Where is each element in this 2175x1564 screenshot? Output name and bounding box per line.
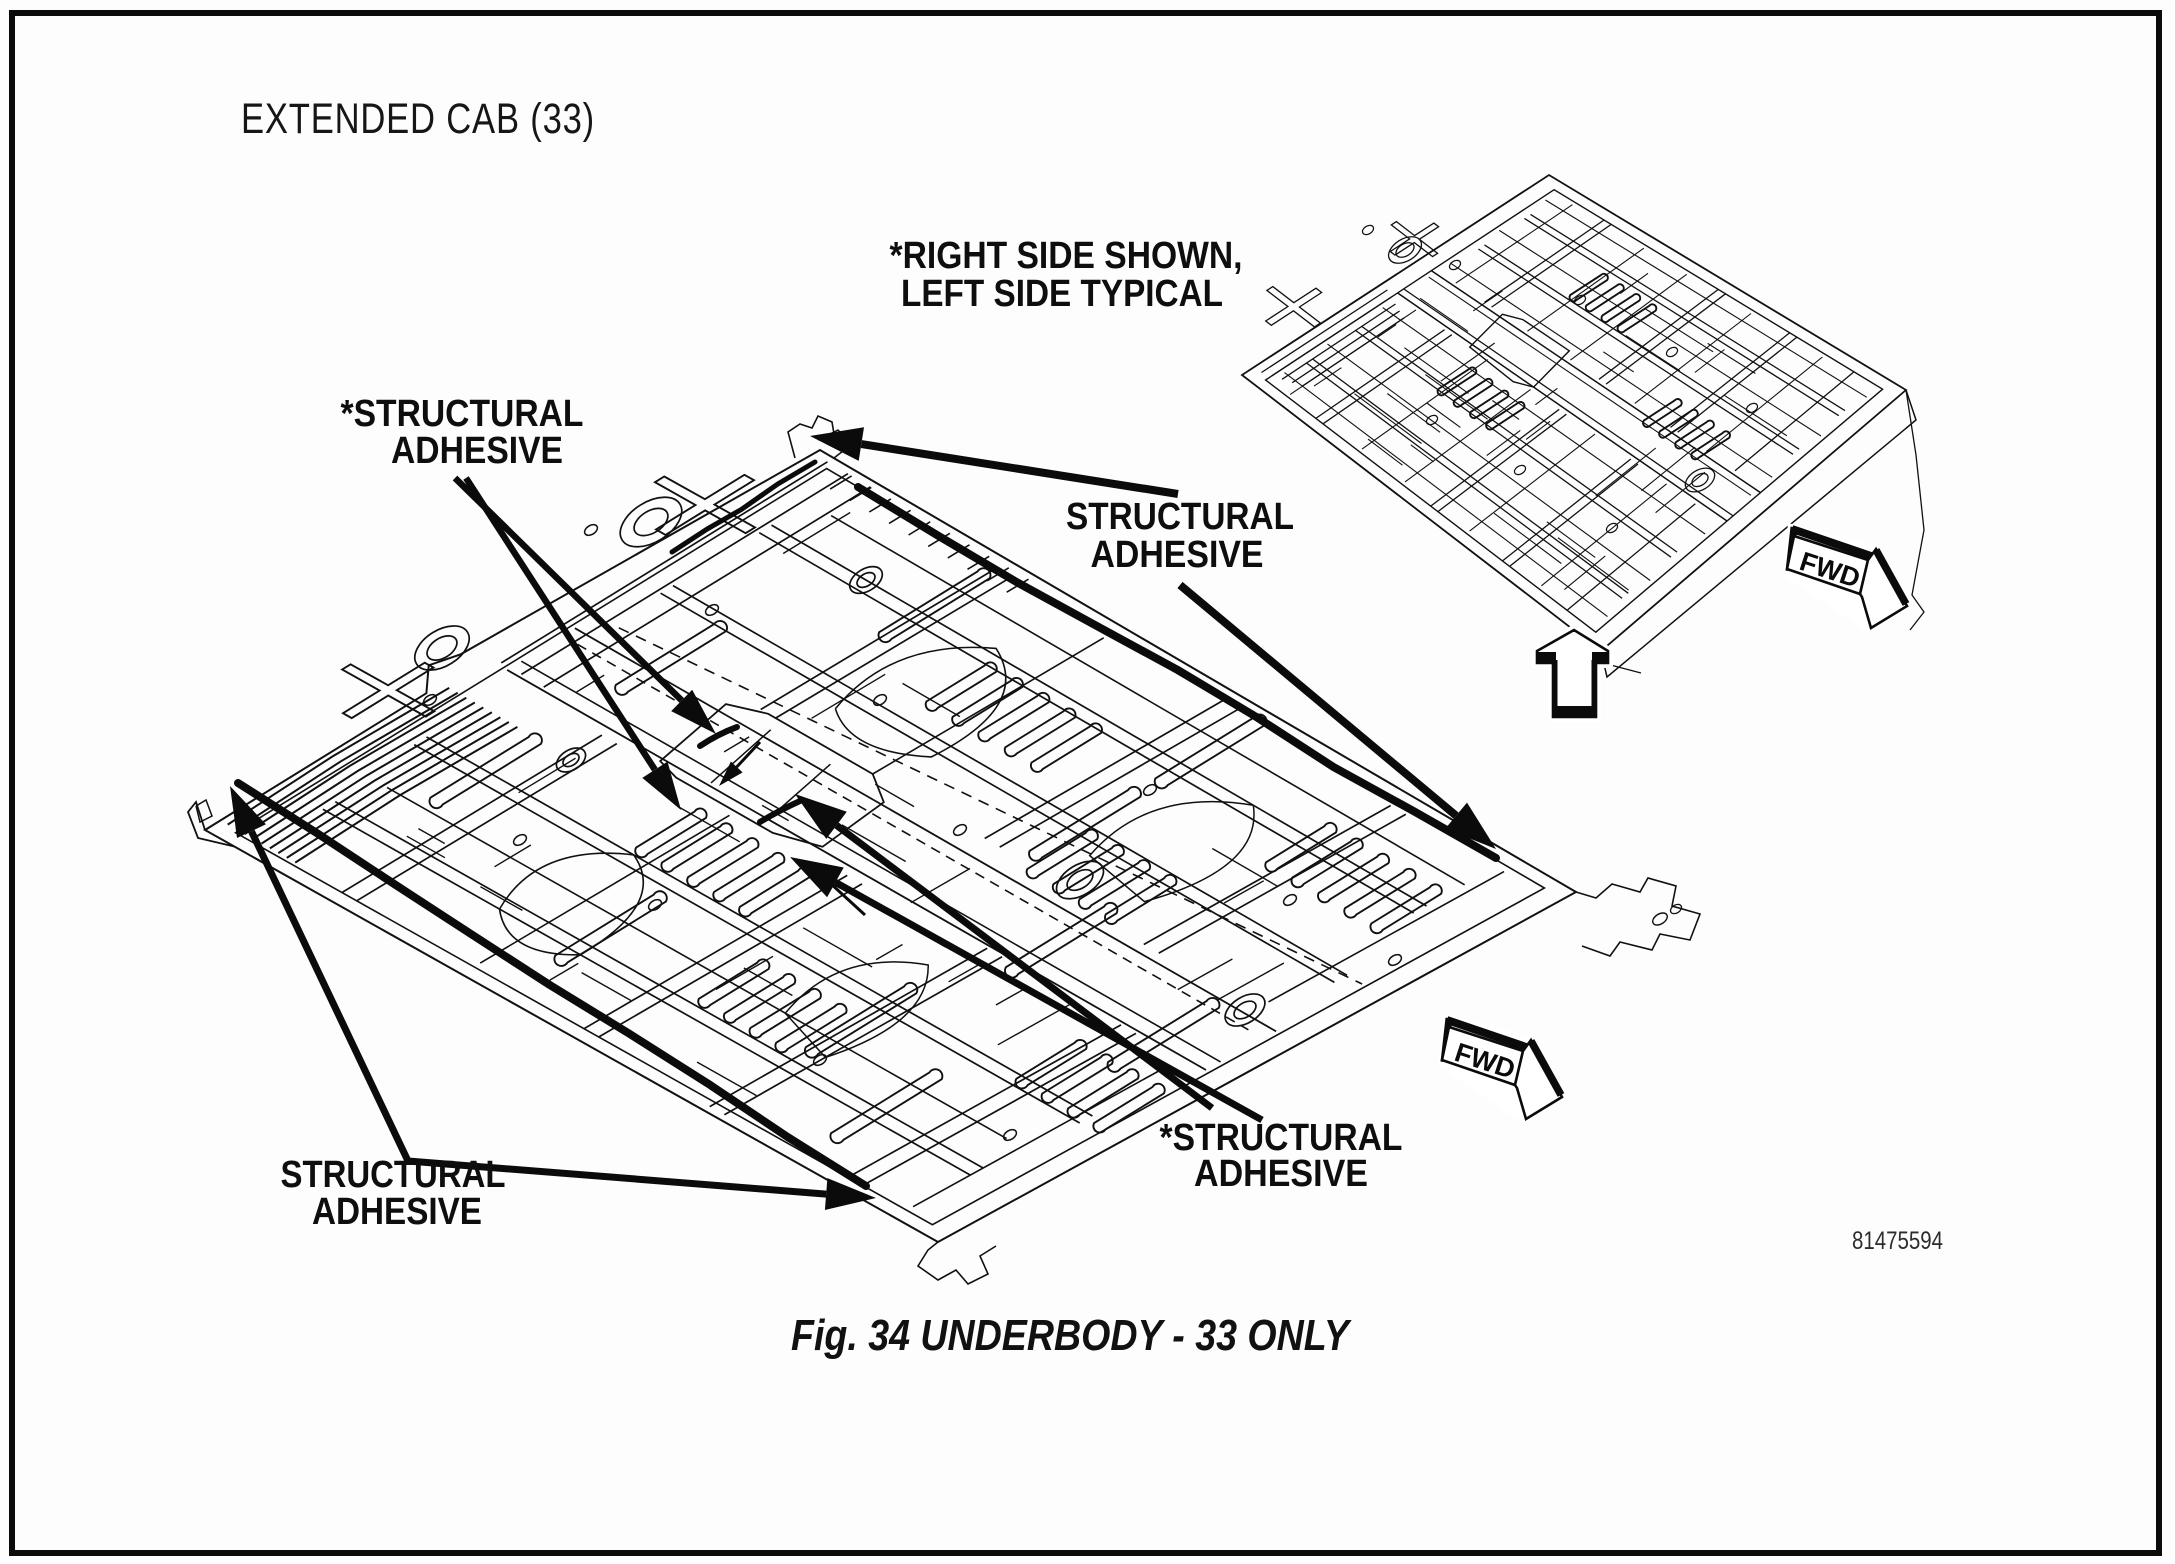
svg-text:STRUCTURAL: STRUCTURAL xyxy=(1066,496,1294,538)
svg-text:EXTENDED CAB (33): EXTENDED CAB (33) xyxy=(241,95,595,143)
svg-text:Fig. 34 UNDERBODY - 33 ONLY: Fig. 34 UNDERBODY - 33 ONLY xyxy=(791,1311,1352,1360)
svg-text:*RIGHT SIDE SHOWN,: *RIGHT SIDE SHOWN, xyxy=(890,235,1243,277)
svg-text:ADHESIVE: ADHESIVE xyxy=(1091,534,1264,576)
svg-text:ADHESIVE: ADHESIVE xyxy=(1194,1153,1368,1195)
svg-text:81475594: 81475594 xyxy=(1852,1227,1943,1255)
svg-text:*STRUCTURAL: *STRUCTURAL xyxy=(341,393,584,435)
svg-text:LEFT SIDE TYPICAL: LEFT SIDE TYPICAL xyxy=(901,273,1223,315)
svg-text:ADHESIVE: ADHESIVE xyxy=(391,430,563,472)
svg-text:STRUCTURAL: STRUCTURAL xyxy=(281,1154,506,1196)
svg-text:ADHESIVE: ADHESIVE xyxy=(312,1191,482,1233)
